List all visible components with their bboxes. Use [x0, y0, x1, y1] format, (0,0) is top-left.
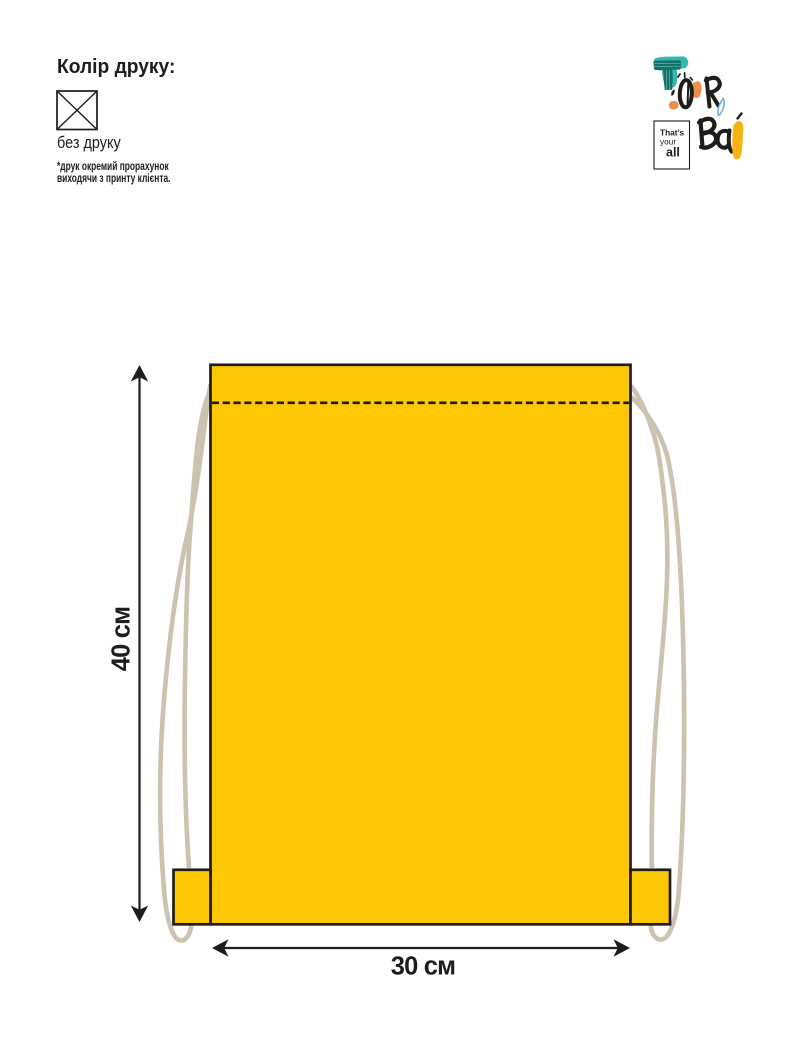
svg-text:30 см: 30 см: [391, 953, 456, 981]
svg-text:40 см: 40 см: [108, 607, 136, 672]
